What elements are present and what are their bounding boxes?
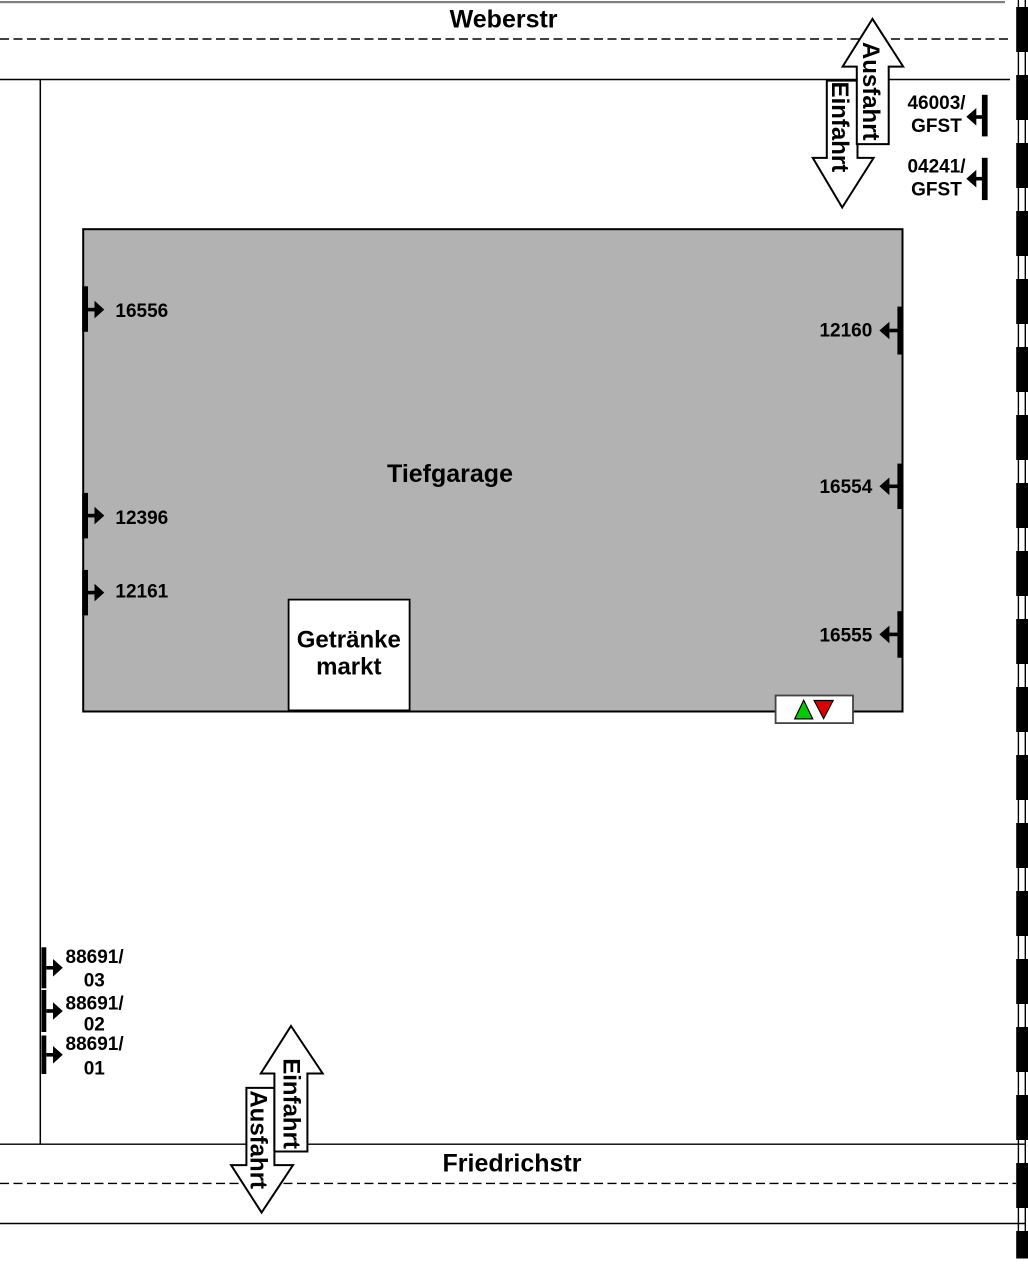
svg-text:03: 03	[84, 970, 105, 991]
svg-text:12161: 12161	[115, 582, 168, 603]
svg-text:Weberstr: Weberstr	[450, 6, 558, 34]
svg-text:Friedrichstr: Friedrichstr	[443, 1150, 582, 1178]
svg-text:Einfahrt: Einfahrt	[277, 1058, 304, 1149]
svg-text:88691/: 88691/	[66, 1034, 125, 1055]
svg-text:01: 01	[84, 1058, 106, 1079]
svg-text:Einfahrt: Einfahrt	[826, 82, 853, 173]
svg-text:GFST: GFST	[911, 116, 962, 137]
svg-text:GFST: GFST	[911, 180, 962, 201]
svg-text:Tiefgarage: Tiefgarage	[387, 460, 513, 488]
svg-text:02: 02	[84, 1015, 105, 1036]
svg-text:46003/: 46003/	[907, 93, 966, 114]
svg-text:markt: markt	[316, 653, 381, 680]
svg-text:16556: 16556	[115, 301, 168, 322]
svg-text:12160: 12160	[819, 320, 872, 341]
svg-text:Ausfahrt: Ausfahrt	[857, 42, 884, 141]
svg-text:88691/: 88691/	[66, 994, 125, 1015]
svg-text:88691/: 88691/	[66, 947, 125, 968]
svg-text:12396: 12396	[115, 508, 168, 529]
svg-text:16555: 16555	[819, 625, 872, 646]
svg-text:Ausfahrt: Ausfahrt	[244, 1090, 271, 1189]
svg-text:16554: 16554	[819, 477, 872, 498]
svg-text:04241/: 04241/	[907, 156, 966, 177]
svg-text:Getränke: Getränke	[297, 627, 401, 654]
